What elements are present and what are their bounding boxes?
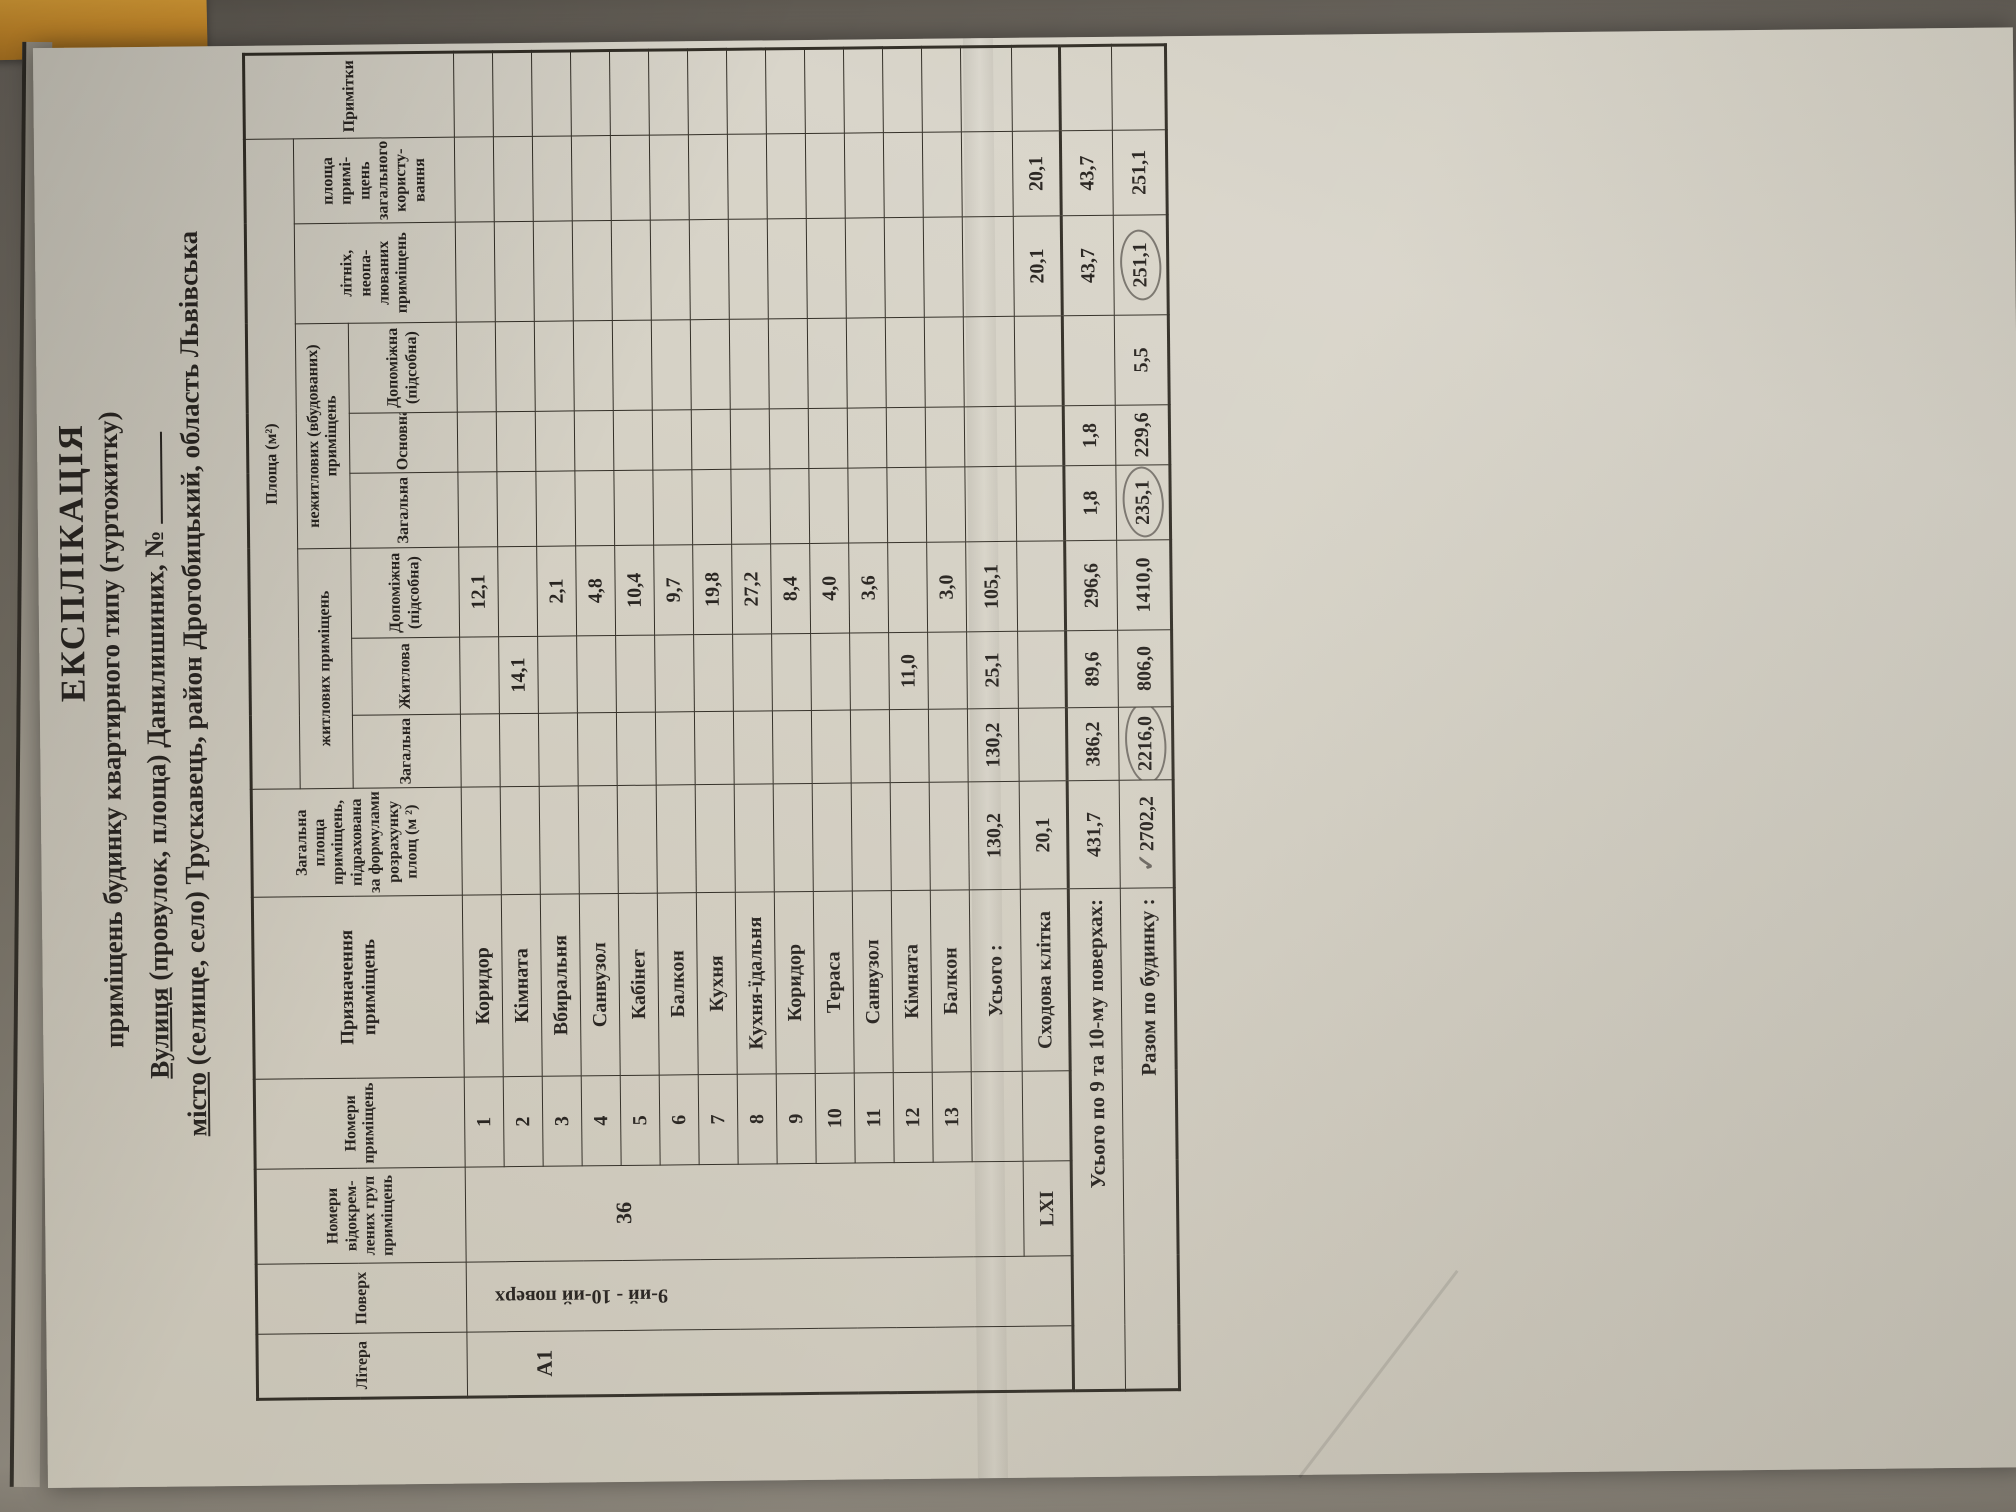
building-total-label: Разом по будинку :: [1120, 888, 1179, 1391]
empty-cell: [1059, 45, 1112, 131]
aux-area: 10,4: [615, 545, 655, 635]
aux-area: 3,0: [927, 542, 967, 632]
empty-cell: [851, 783, 891, 891]
col-header-poverh: Поверх: [256, 1262, 467, 1334]
empty-cell: [726, 49, 766, 134]
empty-cell: [500, 786, 540, 894]
empty-cell: [609, 50, 649, 135]
floors-common: 43,7: [1060, 130, 1113, 216]
room-name: Вбиральня: [540, 894, 581, 1076]
living-area: 14,1: [499, 636, 539, 713]
subtotal-label: Усього :: [969, 889, 1022, 1072]
pencil-circle: 235,1: [1131, 480, 1154, 525]
col-header-room-numbers: Номери приміщень: [254, 1077, 465, 1169]
empty-cell: [690, 319, 730, 409]
empty-cell: [882, 47, 922, 132]
empty-cell: [848, 468, 888, 543]
empty-cell: [733, 711, 773, 784]
empty-cell: [765, 48, 805, 133]
aux-area: 3,6: [849, 543, 889, 633]
empty-cell: [883, 132, 923, 217]
empty-cell: [772, 710, 812, 783]
empty-cell: [964, 406, 1016, 467]
subtotal-total: 130,2: [968, 781, 1020, 890]
living-area: [850, 633, 890, 710]
building-nonres-total-value: 235,1: [1131, 480, 1153, 525]
room-number: 6: [659, 1075, 699, 1165]
living-area: [616, 635, 656, 712]
empty-cell: [614, 470, 654, 545]
empty-cell: [531, 51, 571, 136]
empty-cell: [773, 783, 813, 891]
paper-crease: [1298, 1270, 1458, 1478]
empty-cell: [730, 409, 770, 469]
empty-cell: [455, 222, 495, 322]
empty-cell: [534, 321, 574, 411]
empty-cell: [807, 318, 847, 408]
building-summer: 251,1: [1113, 215, 1168, 316]
room-number: 7: [698, 1074, 738, 1164]
empty-cell: [495, 321, 535, 411]
empty-cell: [688, 134, 728, 219]
room-number: 10: [815, 1073, 855, 1163]
room-number: 13: [932, 1072, 972, 1162]
empty-cell: [539, 786, 579, 894]
empty-cell: [453, 52, 493, 137]
floors-res-total: 386,2: [1066, 707, 1119, 781]
col-header-total-area: Загальна площа приміщень, підрахована за…: [251, 787, 462, 897]
floors-nonres-main: 1,8: [1063, 405, 1116, 466]
empty-cell: [731, 469, 771, 544]
empty-cell: [889, 709, 929, 782]
empty-cell: [924, 317, 964, 407]
empty-cell: [692, 469, 732, 544]
empty-cell: [650, 220, 690, 320]
empty-cell: [845, 218, 885, 318]
building-summer-value: 251,1: [1129, 242, 1151, 287]
floors-aux: 296,6: [1065, 540, 1118, 631]
empty-cell: [768, 318, 808, 408]
empty-cell: [532, 136, 572, 221]
empty-cell: [652, 410, 692, 470]
empty-cell: [846, 318, 886, 408]
empty-cell: [734, 784, 774, 892]
floors-summer: 43,7: [1061, 215, 1114, 316]
col-header-residential-group: житлових приміщень: [298, 548, 354, 789]
empty-cell: [1062, 315, 1115, 406]
col-header-common: площа примі­щень загаль­ного користу­ван…: [293, 137, 455, 224]
empty-cell: [691, 409, 731, 469]
empty-cell: [812, 783, 852, 891]
col-header-group-numbers: Номери відокрем­лених груп примі­щень: [255, 1167, 466, 1264]
litera-value: А1: [467, 1326, 1074, 1397]
empty-cell: [770, 468, 810, 543]
empty-cell: [769, 408, 809, 468]
empty-cell: [884, 217, 924, 317]
city-hint: (селище, село): [180, 891, 212, 1066]
empty-cell: [573, 321, 613, 411]
room-name: Балкон: [657, 893, 698, 1075]
empty-cell: [963, 316, 1015, 407]
floors-living: 89,6: [1066, 630, 1119, 708]
empty-cell: [612, 320, 652, 410]
room-name: Кухня-їдальня: [735, 892, 776, 1074]
document-paper: ЕКСПЛІКАЦІЯ приміщень будинку квартирног…: [33, 27, 2016, 1488]
empty-cell: [611, 220, 651, 320]
col-header-area-group: Площа (м²): [244, 139, 300, 790]
empty-cell: [655, 712, 695, 785]
empty-cell: [727, 134, 767, 219]
empty-cell: [496, 411, 536, 471]
room-number: 8: [737, 1074, 777, 1164]
aux-area: 8,4: [771, 543, 811, 633]
stair-total: 20,1: [1019, 781, 1068, 889]
empty-cell: [1111, 45, 1166, 131]
stair-label: Сходова клітка: [1020, 889, 1070, 1071]
empty-cell: [494, 221, 534, 321]
city-value: Трускавець, район Дрогобицький, область …: [173, 231, 210, 885]
subtotal-res-total: 130,2: [967, 708, 1019, 782]
empty-cell: [653, 470, 693, 545]
aux-area: [498, 546, 538, 636]
col-header-res-total: Загальна: [352, 714, 461, 788]
empty-cell: [648, 50, 688, 135]
room-number: 1: [464, 1077, 504, 1167]
empty-cell: [578, 786, 618, 894]
empty-cell: [497, 471, 537, 546]
living-area: [928, 632, 968, 709]
room-name: Санвузол: [852, 891, 893, 1073]
living-area: [538, 636, 578, 713]
empty-cell: [809, 468, 849, 543]
room-name: Коридор: [462, 895, 503, 1077]
aux-area: 4,0: [810, 543, 850, 633]
empty-cell: [925, 407, 965, 467]
empty-cell: [921, 47, 961, 132]
empty-cell: [454, 137, 494, 222]
aux-area: 12,1: [459, 547, 499, 637]
living-area: 11,0: [889, 632, 929, 709]
empty-cell: [570, 51, 610, 136]
empty-cell: [457, 412, 497, 472]
empty-cell: [926, 467, 966, 542]
empty-cell: [456, 322, 496, 412]
empty-cell: [886, 407, 926, 467]
empty-cell: [766, 133, 806, 218]
col-header-summer: літніх, неопа­люваних примі­щень: [294, 222, 456, 324]
empty-cell: [971, 1071, 1023, 1162]
building-common: 251,1: [1112, 130, 1167, 216]
empty-cell: [805, 133, 845, 218]
empty-cell: [1022, 1071, 1071, 1161]
empty-cell: [533, 221, 573, 321]
room-name: Тераса: [813, 891, 854, 1073]
group-number-value: 36: [465, 1161, 1024, 1262]
empty-cell: [806, 218, 846, 318]
empty-cell: [613, 410, 653, 470]
street-label: Вулиця: [144, 987, 175, 1079]
empty-cell: [844, 133, 884, 218]
empty-cell: [961, 131, 1013, 217]
room-number: 9: [776, 1073, 816, 1163]
empty-cell: [929, 782, 969, 890]
room-number: 12: [893, 1072, 933, 1162]
empty-cell: [843, 48, 883, 133]
col-header-purpose: Призначення приміщень: [252, 895, 464, 1079]
street-line: Вулиця (провулок, площа) Данилишиних, №: [133, 431, 176, 1079]
col-header-nonres-aux: Допоміжна (підсобна): [348, 322, 457, 413]
pencil-circle: 251,1: [1129, 242, 1152, 287]
building-nonres-total: 235,1: [1116, 465, 1171, 541]
empty-cell: [962, 216, 1014, 317]
empty-cell: [922, 132, 962, 217]
building-living: 806,0: [1118, 630, 1173, 708]
empty-cell: [694, 711, 734, 784]
street-number-blank: [133, 432, 163, 524]
empty-cell: [577, 713, 617, 786]
living-area: [811, 633, 851, 710]
empty-cell: [651, 320, 691, 410]
floors-total-label: Усього по 9 та 10-му поверхах:: [1068, 888, 1125, 1391]
empty-cell: [1015, 406, 1064, 466]
empty-cell: [493, 136, 533, 221]
empty-cell: [811, 710, 851, 783]
empty-cell: [656, 785, 696, 893]
col-header-notes: Примітки: [243, 52, 454, 139]
aux-area: 27,2: [732, 544, 772, 634]
empty-cell: [492, 51, 532, 136]
pencil-checkmark: ✓: [1133, 853, 1158, 872]
living-area: [733, 634, 773, 711]
room-name: Балкон: [930, 890, 971, 1072]
building-res-total: 2216,0: [1118, 707, 1173, 781]
room-number: 3: [542, 1076, 582, 1166]
room-name: Коридор: [774, 891, 815, 1073]
document-subtitle: приміщень будинку квартирного типу (гурт…: [89, 57, 134, 1402]
room-number: 2: [503, 1076, 543, 1166]
living-area: [460, 637, 500, 714]
empty-cell: [461, 787, 501, 895]
empty-cell: [574, 411, 614, 471]
living-area: [655, 635, 695, 712]
empty-cell: [538, 713, 578, 786]
empty-cell: [1011, 46, 1060, 131]
building-nonres-aux: 5,5: [1114, 315, 1169, 406]
building-nonres-main: 229,6: [1115, 405, 1170, 466]
col-header-res-living: Житлова: [352, 637, 461, 715]
floors-total: 431,7: [1067, 780, 1120, 889]
stair-group-number: LXI: [1023, 1161, 1072, 1256]
room-name: Кухня: [696, 892, 737, 1074]
empty-cell: [923, 217, 963, 317]
empty-cell: [808, 408, 848, 468]
aux-area: 19,8: [693, 544, 733, 634]
street-value: Данилишиних, №: [139, 530, 171, 748]
poverh-vertical-text: 9-ий - 10-ий поверх: [495, 1283, 668, 1308]
empty-cell: [890, 782, 930, 890]
street-hint: (провулок, площа): [141, 754, 173, 980]
empty-cell: [1018, 631, 1067, 708]
empty-cell: [965, 466, 1017, 542]
empty-cell: [729, 319, 769, 409]
empty-cell: [572, 221, 612, 321]
empty-cell: [575, 471, 615, 546]
city-line: місто (селище, село) Трускавець, район Д…: [173, 231, 213, 1137]
aux-area: [888, 542, 928, 632]
col-header-nonres-total: Загальна: [350, 472, 459, 548]
empty-cell: [850, 710, 890, 783]
stair-summer: 20,1: [1013, 216, 1062, 316]
building-total-value: 2702,2: [1136, 796, 1159, 851]
subtotal-living: 25,1: [967, 631, 1019, 709]
room-name: Кімната: [891, 890, 932, 1072]
living-area: [577, 636, 617, 713]
room-name: Санвузол: [579, 893, 620, 1075]
stair-common: 20,1: [1012, 131, 1061, 217]
col-header-nonres-main: Основна: [349, 412, 458, 473]
room-name: Кабінет: [618, 893, 659, 1075]
empty-cell: [616, 712, 656, 785]
aux-area: 9,7: [654, 545, 694, 635]
empty-cell: [728, 219, 768, 319]
empty-cell: [1017, 541, 1066, 631]
empty-cell: [610, 135, 650, 220]
empty-cell: [960, 46, 1012, 132]
subtotal-aux: 105,1: [966, 541, 1018, 632]
empty-cell: [847, 408, 887, 468]
pencil-circle: 2216,0: [1133, 716, 1157, 771]
empty-cell: [536, 471, 576, 546]
aux-area: 4,8: [576, 546, 616, 636]
empty-cell: [460, 714, 500, 787]
empty-cell: [1014, 316, 1063, 406]
col-header-litera: Літера: [257, 1332, 468, 1399]
room-number: 4: [581, 1075, 621, 1165]
empty-cell: [499, 713, 539, 786]
col-header-nonresidential-group: нежитлових (вбудованих) приміщень: [295, 323, 350, 549]
room-name: Кімната: [501, 894, 542, 1076]
photo-background: ЕКСПЛІКАЦІЯ приміщень будинку квартирног…: [0, 0, 2016, 1512]
empty-cell: [695, 784, 735, 892]
living-area: [694, 634, 734, 711]
empty-cell: [649, 135, 689, 220]
empty-cell: [689, 219, 729, 319]
empty-cell: [928, 709, 968, 782]
empty-cell: [887, 467, 927, 542]
empty-cell: [617, 785, 657, 893]
empty-cell: [571, 136, 611, 221]
living-area: [772, 633, 812, 710]
empty-cell: [885, 317, 925, 407]
city-label: місто: [182, 1072, 213, 1137]
room-number: 5: [620, 1075, 660, 1165]
col-header-res-aux: Допоміжна (підсобна): [351, 547, 460, 638]
empty-cell: [1018, 708, 1067, 781]
empty-cell: [1016, 466, 1065, 541]
poverh-value: 9-ий - 10-ий поверх: [466, 1256, 1073, 1332]
empty-cell: [804, 48, 844, 133]
floors-nonres-total: 1,8: [1064, 465, 1117, 541]
aux-area: 2,1: [537, 546, 577, 636]
empty-cell: [458, 472, 498, 547]
room-number: 11: [854, 1073, 894, 1163]
empty-cell: [535, 411, 575, 471]
building-res-total-value: 2216,0: [1133, 716, 1156, 771]
building-aux: 1410,0: [1117, 540, 1172, 631]
empty-cell: [767, 218, 807, 318]
explication-table: Літера Поверх Номери відокрем­лених груп…: [242, 43, 1181, 1401]
empty-cell: [687, 49, 727, 134]
building-total: ✓2702,2: [1119, 780, 1174, 889]
